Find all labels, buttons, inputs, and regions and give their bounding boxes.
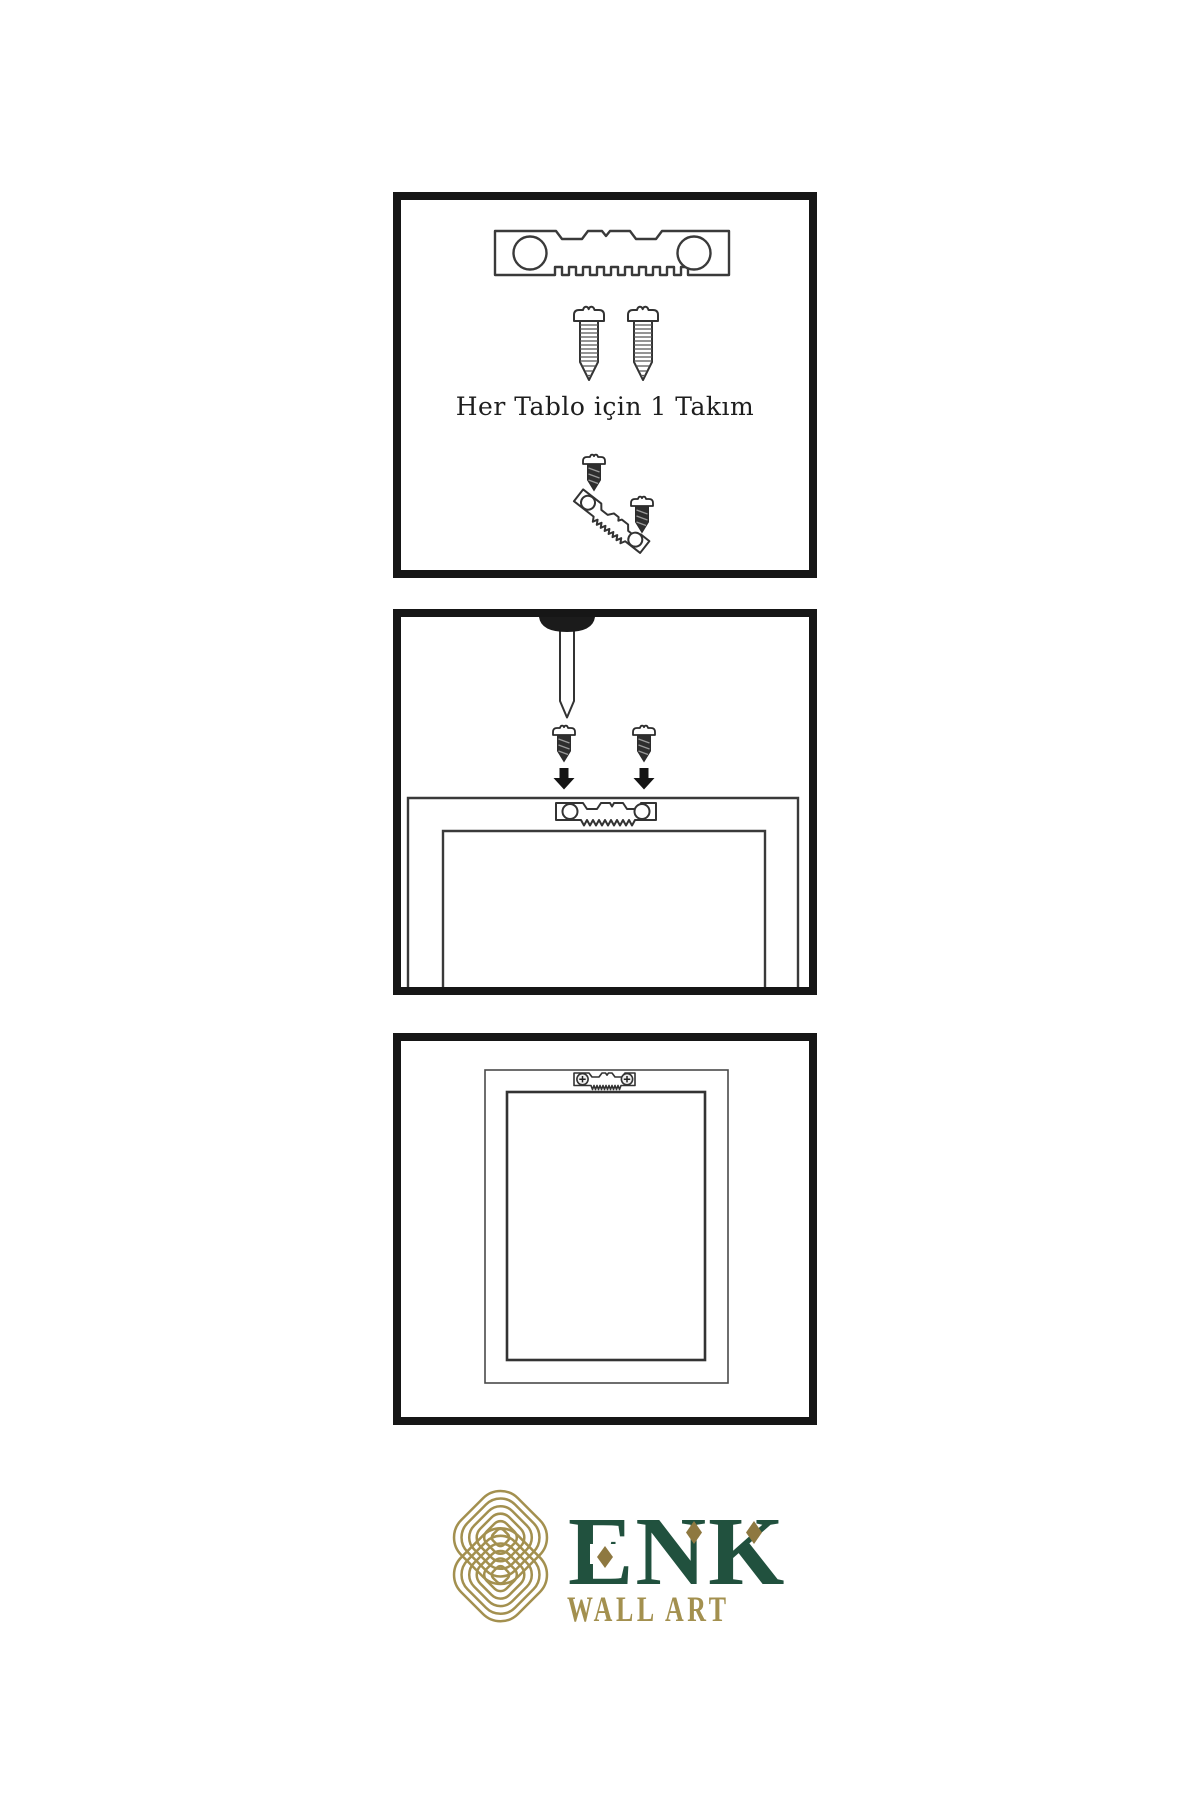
panel-hardware-kit: Her Tablo için 1 Takım — [393, 192, 817, 578]
small-screw-icon — [553, 726, 575, 762]
caption-text: Her Tablo için 1 Takım — [401, 392, 809, 421]
wall-mounting-drawing — [401, 617, 809, 987]
panel-wall-mounting — [393, 609, 817, 995]
arrow-down-icon — [634, 768, 655, 790]
small-screw-icon — [583, 455, 605, 491]
sawtooth-hanger-icon — [556, 803, 656, 826]
page-root: Her Tablo için 1 Takım — [0, 0, 1200, 1800]
panel-hung-frame — [393, 1033, 817, 1425]
hardware-kit-drawing — [401, 200, 809, 570]
brand-subtitle: WALL ART — [567, 1591, 730, 1627]
arrow-down-icon — [554, 768, 575, 790]
nail-icon — [539, 617, 595, 718]
sawtooth-hanger-icon — [495, 231, 729, 275]
knot-logo-icon — [437, 1489, 564, 1627]
frame-front-icon — [485, 1070, 728, 1383]
small-screw-icon — [633, 726, 655, 762]
hung-frame-drawing — [401, 1041, 809, 1417]
screw-icon — [628, 307, 658, 380]
screw-icon — [574, 307, 604, 380]
frame-back-icon — [408, 798, 798, 987]
small-screw-icon — [631, 497, 653, 533]
